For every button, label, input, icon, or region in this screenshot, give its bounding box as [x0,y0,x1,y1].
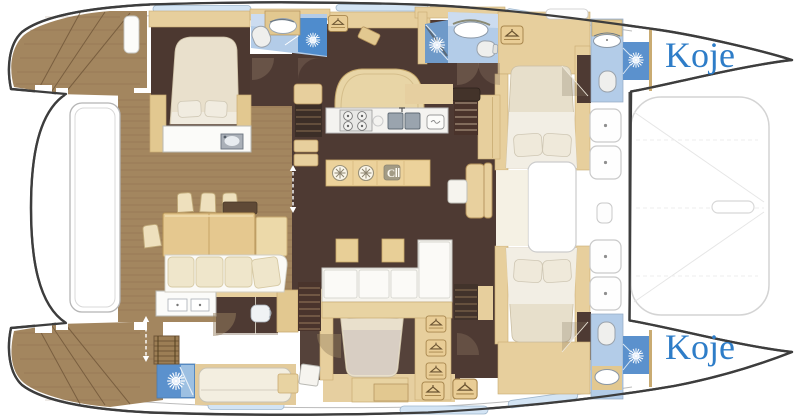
svg-text:Koje: Koje [665,35,735,75]
svg-text:Koje: Koje [665,327,735,367]
svg-text:C: C [387,168,395,180]
